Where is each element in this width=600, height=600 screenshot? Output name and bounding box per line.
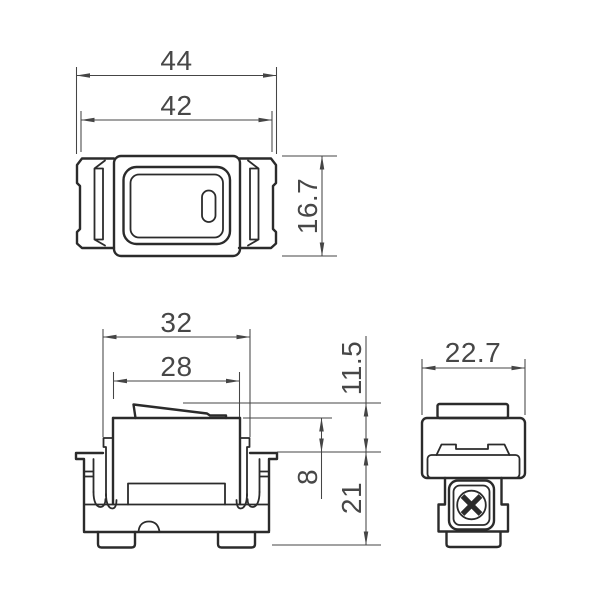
extension-lines-32 — [103, 329, 250, 437]
dim-label-28: 28 — [160, 351, 192, 382]
rocker-outer — [124, 167, 231, 244]
side-right-half — [218, 418, 277, 548]
foot — [218, 532, 255, 548]
front-view: 44 42 16.7 — [77, 45, 338, 256]
wing-slot — [95, 161, 106, 246]
drawing-canvas: 44 42 16.7 — [0, 0, 600, 600]
technical-drawing: 44 42 16.7 — [0, 0, 600, 600]
ear-and-wall — [76, 453, 103, 531]
side-left-half — [76, 418, 135, 548]
dim-label-16-7: 16.7 — [292, 178, 323, 235]
mounting-wing-right — [239, 159, 276, 249]
dim-label-11-5: 11.5 — [336, 341, 367, 395]
switch-frame-outline — [114, 156, 240, 256]
ear-and-wall — [250, 453, 277, 531]
hook-notch — [240, 438, 250, 496]
mounting-wing-left — [77, 159, 114, 249]
dim-label-44: 44 — [160, 45, 192, 76]
side-view: 32 28 8 11.5 21 — [76, 307, 381, 548]
flange-plate — [428, 455, 520, 478]
rocker-profile — [438, 404, 509, 418]
rocker-side — [134, 405, 227, 419]
screw-cross-slot — [463, 496, 481, 514]
hook-notch — [104, 438, 114, 496]
dim-label-32: 32 — [160, 307, 192, 338]
base-recess — [128, 484, 225, 505]
profile-view: 22.7 — [422, 337, 525, 547]
clip-ticks — [85, 472, 93, 477]
wing-outline — [77, 159, 114, 249]
flange-boss — [437, 445, 510, 456]
bottom-bump — [139, 522, 160, 533]
height-extension-lines — [183, 403, 381, 545]
foot — [98, 532, 135, 548]
wing-outline — [239, 159, 276, 249]
indicator-lens — [202, 191, 216, 223]
foot-profile — [447, 532, 501, 547]
dim-label-8: 8 — [292, 469, 323, 485]
dim-label-22-7: 22.7 — [445, 337, 502, 368]
dim-label-21: 21 — [336, 482, 367, 514]
flange-block — [422, 418, 525, 478]
dim-label-42: 42 — [160, 90, 192, 121]
rocker-inner — [131, 175, 224, 238]
clip-ticks — [260, 472, 268, 477]
wing-slot — [248, 161, 259, 246]
